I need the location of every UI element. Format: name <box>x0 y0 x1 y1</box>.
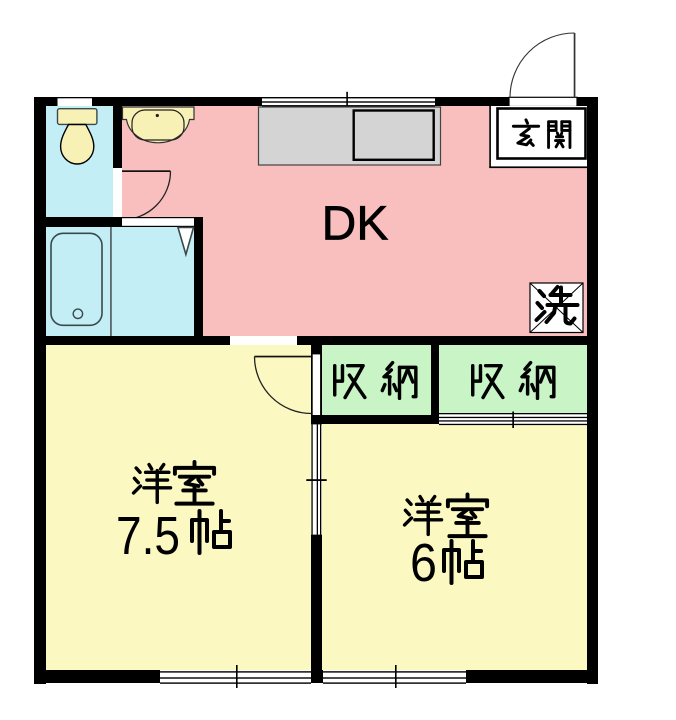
svg-text:7.5: 7.5 <box>116 506 180 566</box>
svg-text:6: 6 <box>410 533 437 593</box>
svg-text:DK: DK <box>322 198 389 251</box>
